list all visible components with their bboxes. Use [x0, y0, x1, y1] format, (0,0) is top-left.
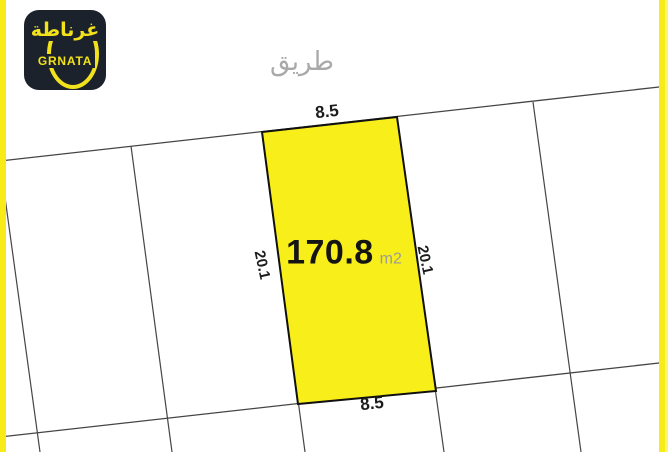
- left-edge-stripe: [0, 0, 6, 452]
- dimension-top: 8.5: [314, 101, 340, 124]
- dimension-bottom: 8.5: [359, 393, 385, 416]
- logo-latin-wordmark: GRNATA: [24, 54, 106, 69]
- plot-area-unit: m2: [380, 251, 402, 269]
- plot-area-value: 170.8: [286, 234, 374, 273]
- parcel-line-5: [533, 102, 581, 452]
- parcel-line-2: [131, 146, 172, 452]
- parcel-line-1: [0, 161, 40, 452]
- logo-arabic-wordmark: غرناطة: [24, 17, 106, 44]
- plot-map-image: طريق 8.5 8.5 20.1 20.1 170.8 m2 غرناطة G…: [0, 0, 668, 452]
- grnata-logo: غرناطة GRNATA: [24, 10, 106, 90]
- right-edge-stripe: [659, 0, 668, 452]
- plot-area-label: 170.8 m2: [286, 234, 402, 273]
- road-label: طريق: [270, 47, 334, 77]
